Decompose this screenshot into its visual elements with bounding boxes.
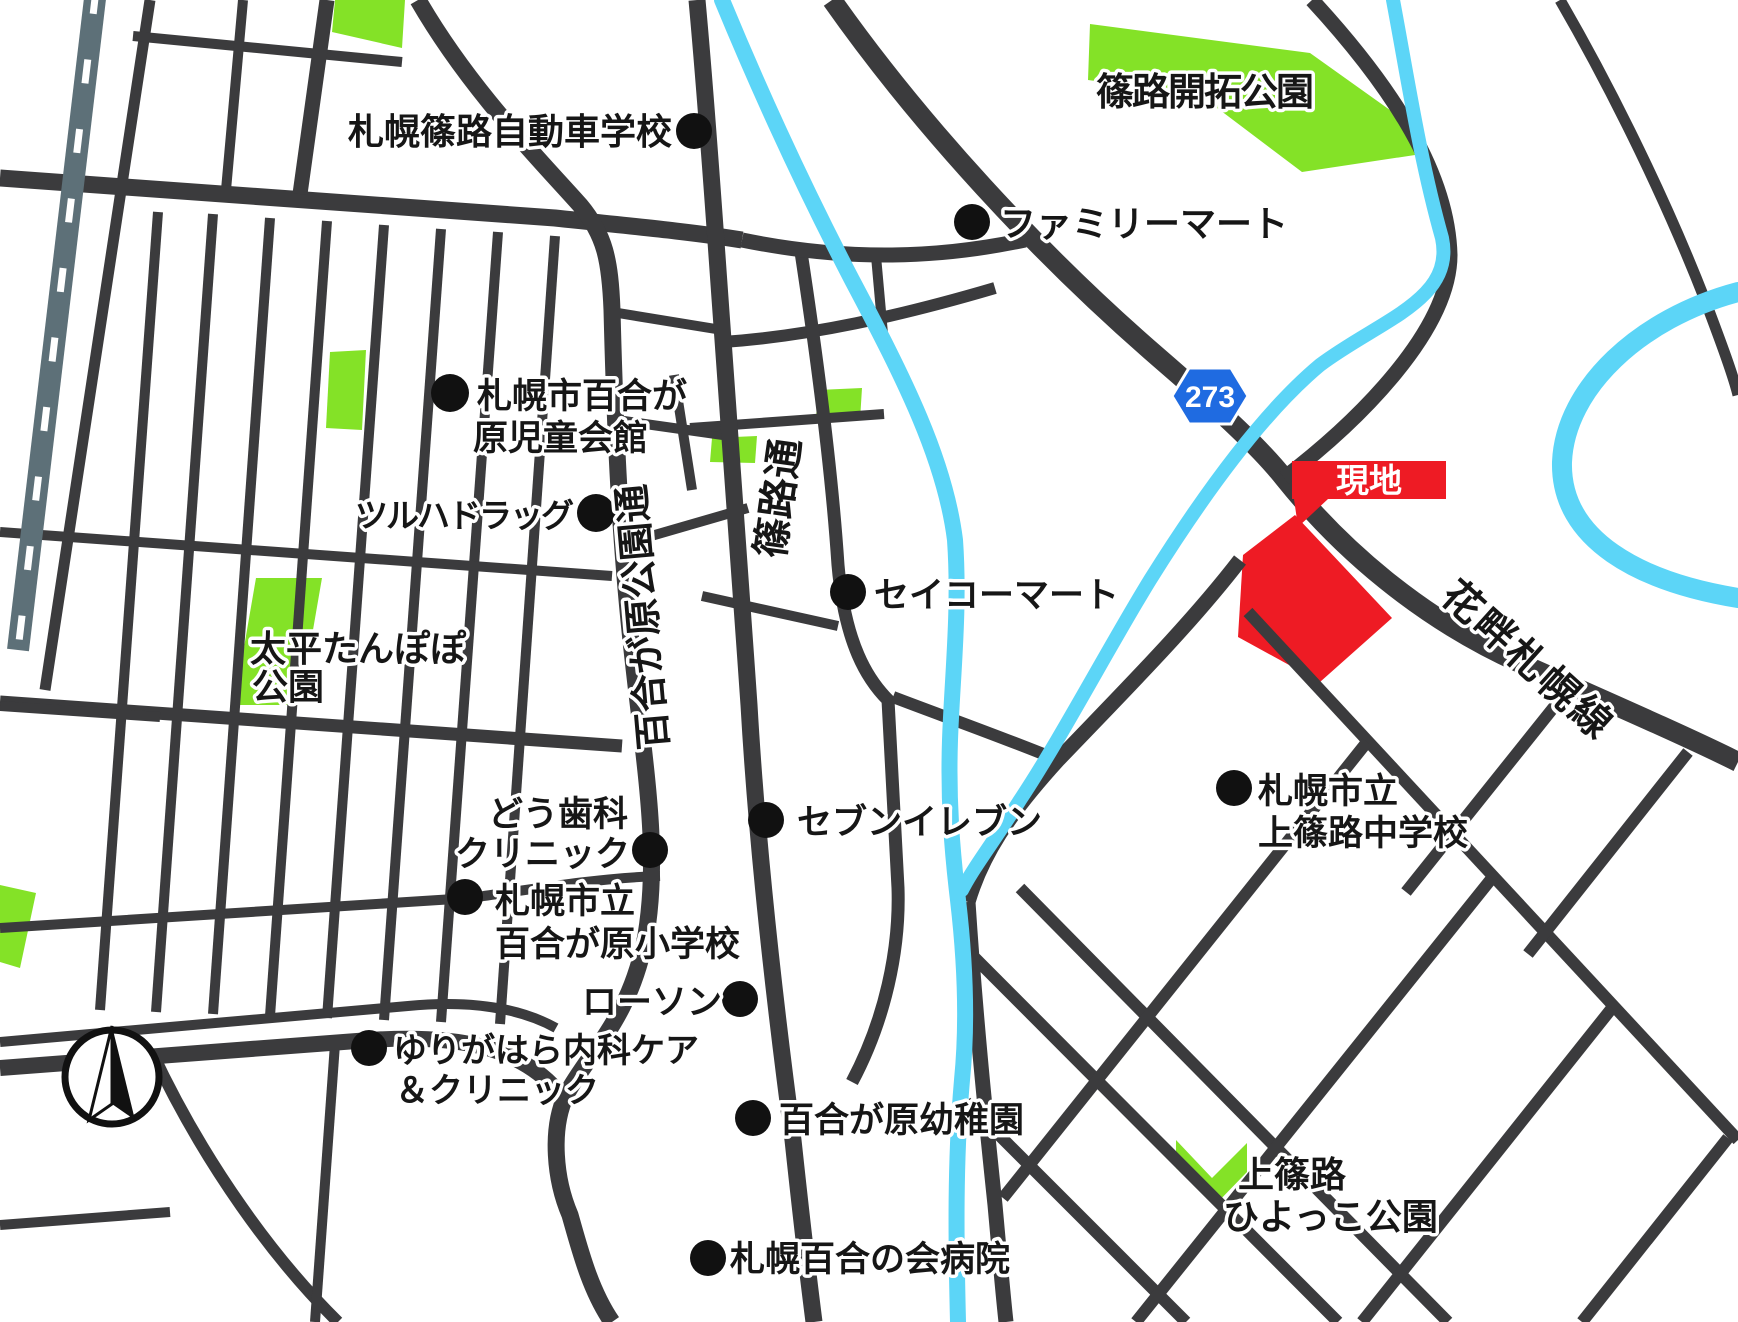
tsuruha-dot xyxy=(577,494,615,532)
driving-school-dot xyxy=(676,113,712,149)
hospital-label: 札幌百合の会病院 xyxy=(730,1240,1010,1279)
driving-school-label: 札幌篠路自動車学校 xyxy=(348,111,672,152)
site-parcel xyxy=(1238,515,1392,682)
site-banner-label: 現地 xyxy=(1336,462,1402,499)
dou-dental-dot xyxy=(632,832,668,868)
elementary-school-dot xyxy=(447,879,483,915)
seven-eleven-label: セブンイレブン xyxy=(797,802,1042,842)
bannaguro-sapporo-line-label: 花畔札幌線 xyxy=(1433,572,1622,749)
hiyokko-park-label-line1: 上篠路 xyxy=(1238,1154,1347,1195)
lawson-label: ローソン xyxy=(582,983,722,1022)
seicomart-label: セイコーマート xyxy=(874,576,1119,615)
shinoro-dori-label: 篠路通 xyxy=(749,436,809,561)
hospital-dot xyxy=(690,1240,726,1276)
elementary-school-label-line1: 札幌市立 xyxy=(495,882,635,921)
seven-eleven-dot xyxy=(748,802,784,838)
familymart-label: ファミリーマート xyxy=(1000,203,1288,244)
location-map: 273 現地 札幌篠路自動車学校 篠路開拓公園 ファミリーマート 札幌市百合が … xyxy=(0,0,1738,1322)
junior-high-label-line1: 札幌市立 xyxy=(1258,772,1398,811)
taihei-tanpopo-label-line2: 公園 xyxy=(252,666,324,707)
clinic-dot xyxy=(351,1030,387,1066)
clinic-label-line2: ＆クリニック xyxy=(395,1072,599,1110)
lawson-dot xyxy=(722,981,758,1017)
shinoro-kaitaku-park-label: 篠路開拓公園 xyxy=(1096,72,1312,114)
seicomart-dot xyxy=(830,574,866,610)
compass-north-icon xyxy=(65,1026,159,1124)
park-area xyxy=(326,350,366,430)
route-273-number: 273 xyxy=(1185,381,1235,414)
railway-line xyxy=(18,0,96,650)
kindergarten-dot xyxy=(735,1100,771,1136)
clinic-label-line1: ゆりがはら内科ケア xyxy=(393,1032,699,1070)
jidokaikan-label-line1: 札幌市百合が xyxy=(477,377,687,416)
junior-high-dot xyxy=(1216,770,1252,806)
hiyokko-park-label-line2: ひよっこ公園 xyxy=(1223,1196,1438,1237)
tsuruha-label: ツルハドラッグ xyxy=(355,497,574,534)
dou-dental-label-line1: どう歯科 xyxy=(488,795,628,834)
map-canvas: 273 現地 札幌篠路自動車学校 篠路開拓公園 ファミリーマート 札幌市百合が … xyxy=(0,0,1738,1322)
park-area xyxy=(332,0,405,48)
kindergarten-label: 百合が原幼稚園 xyxy=(779,1101,1024,1140)
taihei-tanpopo-label-line1: 太平たんぽぽ xyxy=(250,628,467,669)
familymart-dot xyxy=(954,204,990,240)
junior-high-label-line2: 上篠路中学校 xyxy=(1258,813,1468,853)
dou-dental-label-line2: クリニック xyxy=(455,835,630,874)
pond-curve xyxy=(1562,292,1738,598)
elementary-school-label-line2: 百合が原小学校 xyxy=(495,924,740,964)
route-273-shield: 273 xyxy=(1172,368,1248,424)
jidokaikan-label-line2: 原児童会館 xyxy=(473,418,648,458)
jidokaikan-dot xyxy=(431,374,469,412)
